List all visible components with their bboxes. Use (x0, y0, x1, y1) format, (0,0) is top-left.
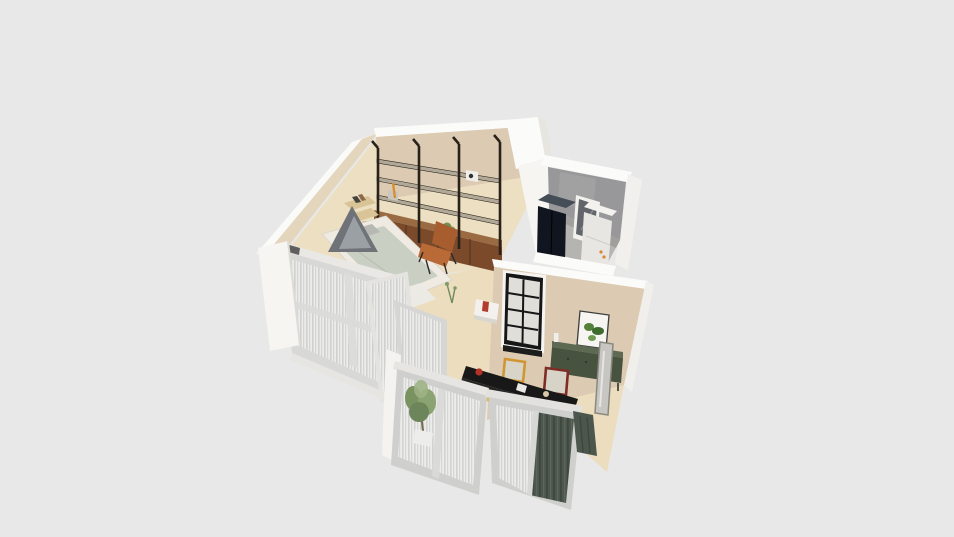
render-canvas[interactable] (0, 0, 954, 537)
floorplan-3d-view[interactable] (0, 0, 954, 537)
appliance-light (602, 255, 605, 258)
utility-room (533, 155, 642, 276)
appliance-light (599, 250, 602, 253)
white-vase (554, 333, 559, 342)
plant-foliage (414, 380, 428, 398)
print-leaf (592, 327, 604, 335)
bowl (543, 391, 549, 397)
sideboard-knob (585, 361, 587, 363)
sprig-leaf (445, 282, 449, 286)
shelf-decor-figure (469, 174, 473, 178)
red-vase (482, 301, 489, 312)
sideboard-knob (567, 358, 569, 360)
print-leaf (588, 335, 596, 341)
sprig-leaf (453, 286, 457, 290)
red-kettle (475, 368, 482, 375)
plant-foliage (409, 402, 429, 422)
